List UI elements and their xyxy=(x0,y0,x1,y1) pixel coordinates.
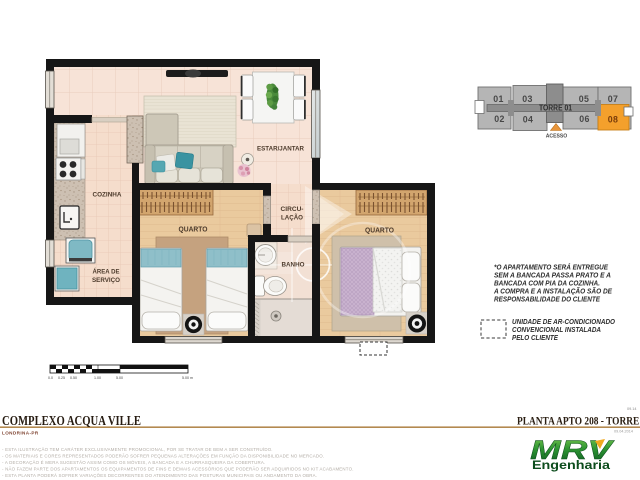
svg-text:PLANTA APTO 208 - TORRE 01: PLANTA APTO 208 - TORRE 01 xyxy=(517,416,640,428)
svg-text:5.00 m: 5.00 m xyxy=(182,376,193,380)
svg-text:- OS MATERIAIS E CORES REPRESE: - OS MATERIAIS E CORES REPRESENTADOS POD… xyxy=(2,454,324,459)
svg-text:05: 05 xyxy=(579,94,590,104)
svg-text:BANHO: BANHO xyxy=(282,262,305,269)
svg-text:QUARTO: QUARTO xyxy=(365,228,395,235)
svg-text:ÁREA DE: ÁREA DE xyxy=(93,267,121,276)
svg-text:TORRE 01: TORRE 01 xyxy=(539,104,572,113)
svg-text:06: 06 xyxy=(579,114,590,124)
svg-text:5.00: 5.00 xyxy=(116,376,123,380)
svg-text:03: 03 xyxy=(522,94,533,104)
svg-text:09.14: 09.14 xyxy=(627,407,637,411)
svg-text:RESPONSABILIDADE DO CLIENTE: RESPONSABILIDADE DO CLIENTE xyxy=(494,295,601,304)
svg-text:SERVIÇO: SERVIÇO xyxy=(92,277,120,284)
svg-text:- A DECORAÇÃO É MERA SUGESTÃO: - A DECORAÇÃO É MERA SUGESTÃO ASSIM COMO… xyxy=(2,460,265,465)
svg-text:QUARTO: QUARTO xyxy=(179,227,209,234)
svg-text:0.25: 0.25 xyxy=(58,376,65,380)
svg-text:ESTAR/JANTAR: ESTAR/JANTAR xyxy=(257,146,304,153)
svg-text:1.00: 1.00 xyxy=(94,376,101,380)
svg-text:CIRCU-: CIRCU- xyxy=(281,206,304,213)
svg-text:LONDRINA-PR: LONDRINA-PR xyxy=(2,431,39,436)
svg-text:01: 01 xyxy=(493,94,504,104)
svg-text:- ESTA PLANTA PODERÁ SOFRER VA: - ESTA PLANTA PODERÁ SOFRER VARIAÇÕES DE… xyxy=(2,473,317,478)
svg-text:Engenharia: Engenharia xyxy=(532,460,611,472)
svg-text:ACESSO: ACESSO xyxy=(546,134,568,140)
svg-text:02: 02 xyxy=(494,114,505,124)
svg-text:07: 07 xyxy=(608,94,619,104)
svg-text:0.0: 0.0 xyxy=(48,376,53,380)
svg-text:LAÇÃO: LAÇÃO xyxy=(281,213,303,222)
svg-text:- NÃO FAZEM PARTE DOS APARTAME: - NÃO FAZEM PARTE DOS APARTAMENTOS OS EQ… xyxy=(2,467,354,472)
svg-text:- ESTA ILUSTRAÇÃO TEM CARÁTER: - ESTA ILUSTRAÇÃO TEM CARÁTER EXCLUSIVAM… xyxy=(2,447,273,452)
svg-text:COMPLEXO ACQUA VILLE: COMPLEXO ACQUA VILLE xyxy=(2,414,141,429)
svg-text:04: 04 xyxy=(523,115,534,125)
svg-text:08: 08 xyxy=(608,115,619,125)
svg-text:PELO CLIENTE: PELO CLIENTE xyxy=(512,333,559,342)
svg-text:09.04.2014: 09.04.2014 xyxy=(614,430,633,434)
svg-text:0.50: 0.50 xyxy=(70,376,77,380)
svg-text:COZINHA: COZINHA xyxy=(93,192,122,199)
